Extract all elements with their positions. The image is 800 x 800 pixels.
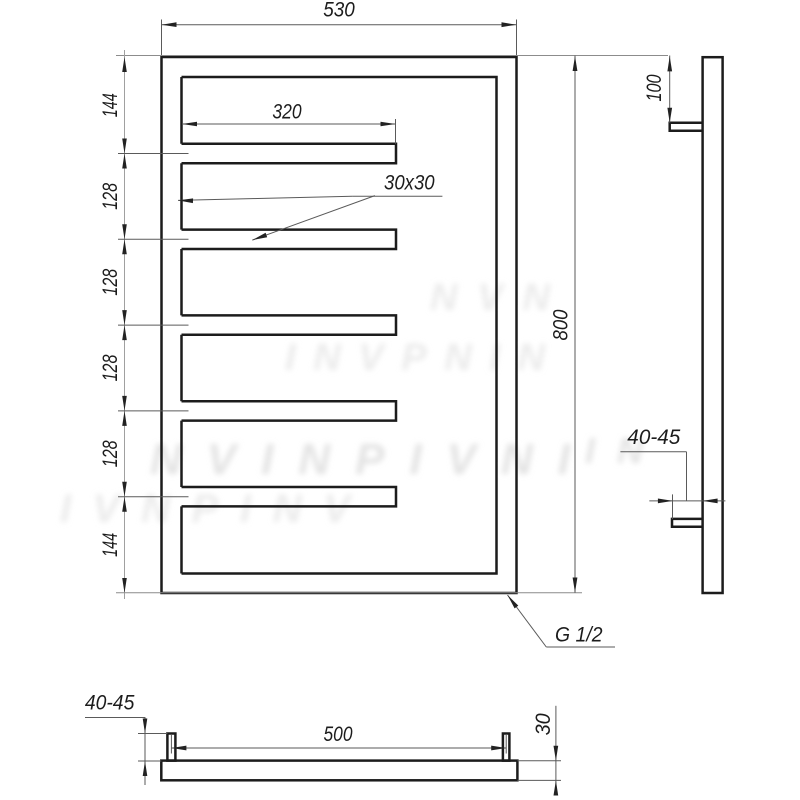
svg-text:128: 128 (99, 269, 122, 296)
svg-text:500: 500 (324, 723, 353, 746)
svg-text:128: 128 (99, 440, 122, 467)
svg-text:144: 144 (99, 93, 122, 117)
svg-text:30x30: 30x30 (384, 171, 435, 194)
svg-text:144: 144 (99, 533, 122, 557)
svg-text:128: 128 (99, 183, 122, 210)
svg-text:30: 30 (532, 713, 555, 735)
svg-text:530: 530 (323, 0, 355, 22)
svg-text:800: 800 (550, 309, 573, 340)
svg-text:100: 100 (643, 74, 666, 101)
svg-text:128: 128 (99, 354, 122, 381)
svg-text:G 1/2: G 1/2 (555, 623, 603, 646)
svg-text:NVINPIVNI: NVINPIVNI (150, 435, 571, 484)
svg-text:NVN: NVN (430, 277, 552, 319)
svg-text:320: 320 (272, 101, 301, 124)
svg-text:40-45: 40-45 (627, 426, 680, 449)
svg-text:40-45: 40-45 (85, 692, 135, 715)
